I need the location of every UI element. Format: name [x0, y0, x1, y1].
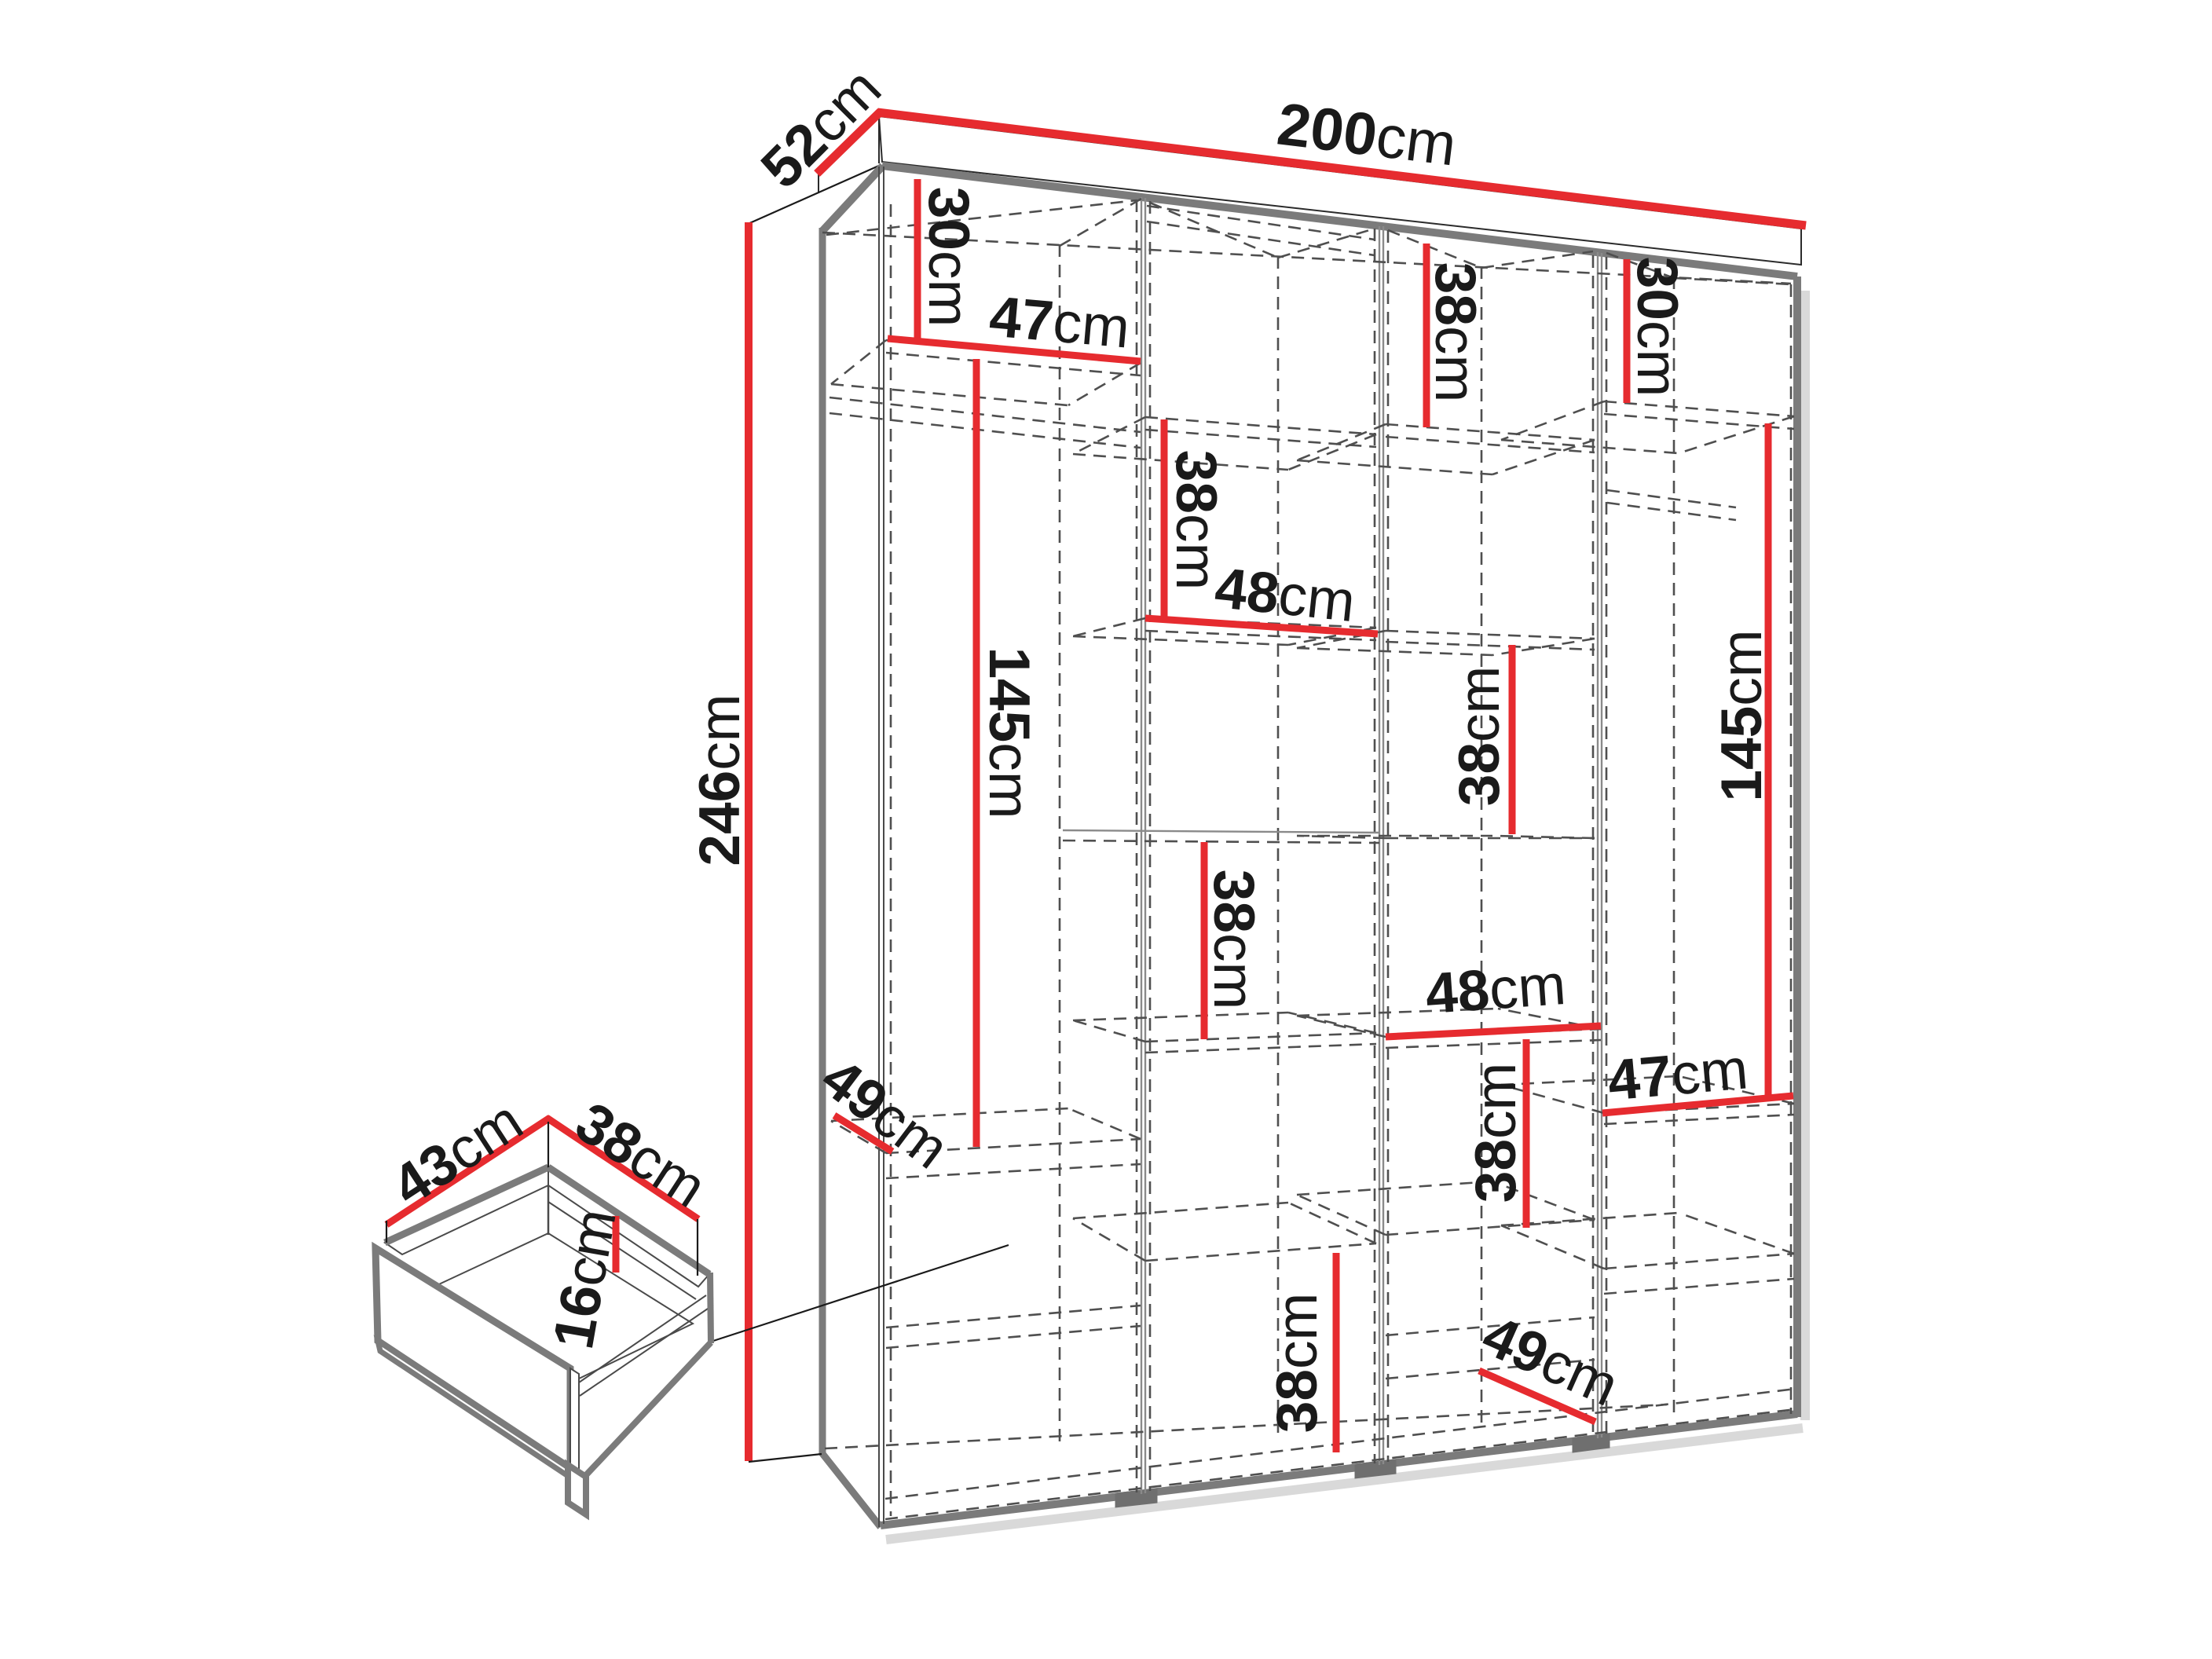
svg-text:48cm: 48cm: [1423, 952, 1568, 1025]
svg-text:145cm: 145cm: [978, 646, 1042, 819]
svg-text:38cm: 38cm: [1203, 870, 1266, 1010]
svg-text:38cm: 38cm: [1265, 1293, 1329, 1434]
svg-text:30cm: 30cm: [917, 187, 981, 328]
svg-text:30cm: 30cm: [1626, 257, 1690, 397]
svg-text:38cm: 38cm: [1464, 1063, 1528, 1203]
svg-text:47cm: 47cm: [987, 284, 1133, 360]
svg-text:38cm: 38cm: [1424, 262, 1488, 403]
svg-text:38cm: 38cm: [1448, 666, 1511, 807]
svg-text:246cm: 246cm: [688, 694, 752, 866]
svg-text:47cm: 47cm: [1606, 1037, 1751, 1112]
svg-text:145cm: 145cm: [1710, 629, 1774, 801]
